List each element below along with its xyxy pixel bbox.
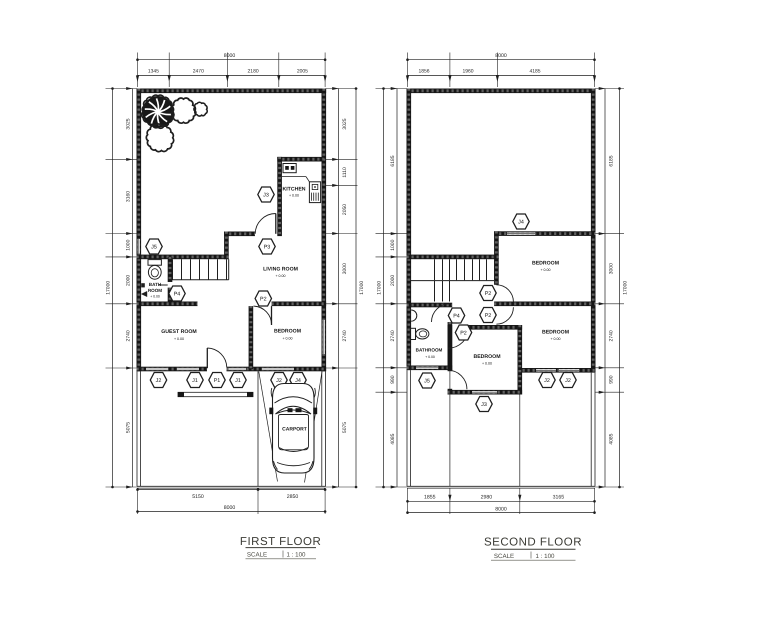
svg-text:5075: 5075 [126,422,132,433]
svg-text:3025: 3025 [342,118,348,129]
svg-text:J1: J1 [192,378,198,384]
svg-text:CARPORT: CARPORT [282,427,307,433]
svg-text:BEDROOM: BEDROOM [274,329,301,335]
svg-text:P2: P2 [485,313,492,319]
svg-text:3025: 3025 [126,118,132,129]
svg-text:J2: J2 [156,378,162,384]
svg-text:1110: 1110 [342,167,348,178]
svg-text:990: 990 [390,375,396,384]
svg-text:17000: 17000 [106,281,112,295]
svg-text:+ 0.00: + 0.00 [150,295,160,299]
svg-text:BATH: BATH [149,282,162,287]
svg-text:2740: 2740 [126,330,132,341]
svg-text:SCALE: SCALE [494,553,514,560]
svg-text:17000: 17000 [377,281,383,295]
svg-text:17000: 17000 [622,281,628,295]
svg-text:6185: 6185 [390,155,396,166]
svg-text:BEDROOM: BEDROOM [542,330,569,336]
svg-text:+ 0.00: + 0.00 [425,355,435,359]
svg-text:SCALE: SCALE [247,552,267,559]
svg-text:+ 0.00: + 0.00 [174,337,184,341]
svg-text:1960: 1960 [462,69,473,75]
svg-text:FIRST FLOOR: FIRST FLOOR [240,536,321,548]
svg-text:4085: 4085 [608,433,614,444]
svg-text:1000: 1000 [390,239,396,250]
svg-text:+ 0.00: + 0.00 [289,193,299,197]
svg-text:990: 990 [608,375,614,384]
svg-text:1856: 1856 [418,69,429,75]
svg-text:8000: 8000 [224,505,236,511]
svg-text:GUEST ROOM: GUEST ROOM [161,329,196,335]
svg-text:1 : 100: 1 : 100 [287,552,306,559]
svg-text:P3: P3 [264,244,271,250]
svg-text:P1: P1 [214,378,221,384]
svg-text:P2: P2 [260,296,267,302]
svg-text:ROOM: ROOM [148,288,162,293]
svg-text:J3: J3 [481,402,487,408]
svg-text:P2: P2 [460,330,467,336]
svg-text:J4: J4 [518,219,524,225]
svg-text:2470: 2470 [193,69,204,75]
svg-text:17000: 17000 [359,281,365,295]
svg-text:2005: 2005 [297,69,308,75]
svg-text:2740: 2740 [608,330,614,341]
svg-text:8000: 8000 [495,506,507,512]
svg-text:+ 0.00: + 0.00 [282,336,292,340]
svg-text:2850: 2850 [287,494,299,500]
svg-text:J2: J2 [276,378,282,384]
svg-text:2980: 2980 [481,495,493,501]
svg-text:1000: 1000 [126,239,132,250]
svg-text:J5: J5 [151,244,157,250]
svg-text:P2: P2 [485,291,492,297]
svg-text:3160: 3160 [126,191,132,202]
svg-text:KITCHEN: KITCHEN [282,186,305,192]
svg-text:+ 0.00: + 0.00 [550,337,560,341]
svg-text:+ 0.00: + 0.00 [482,362,492,366]
svg-text:J3: J3 [263,192,269,198]
svg-text:LIVING ROOM: LIVING ROOM [263,266,298,272]
svg-text:4185: 4185 [529,69,540,75]
svg-text:1345: 1345 [148,69,159,75]
svg-text:BEDROOM: BEDROOM [473,354,500,360]
svg-text:J1: J1 [235,378,241,384]
svg-text:SECOND FLOOR: SECOND FLOOR [484,537,582,549]
svg-text:J2: J2 [544,378,550,384]
svg-text:3000: 3000 [608,263,614,274]
svg-text:5075: 5075 [342,422,348,433]
svg-text:2000: 2000 [390,275,396,286]
svg-text:2180: 2180 [248,69,259,75]
svg-text:2740: 2740 [390,330,396,341]
svg-text:P4: P4 [453,313,460,319]
svg-text:8000: 8000 [495,53,507,59]
svg-text:3000: 3000 [342,263,348,274]
svg-text:5150: 5150 [192,494,204,500]
svg-text:J2: J2 [565,378,571,384]
svg-text:+ 0.00: + 0.00 [275,274,285,278]
svg-text:3165: 3165 [553,495,565,501]
svg-text:2740: 2740 [342,330,348,341]
svg-text:BATHROOM: BATHROOM [416,348,443,353]
svg-text:2000: 2000 [126,275,132,286]
svg-text:1855: 1855 [424,495,436,501]
svg-text:BEDROOM: BEDROOM [532,261,559,267]
svg-text:8000: 8000 [224,53,236,59]
svg-text:1 : 100: 1 : 100 [536,553,555,560]
svg-text:P4: P4 [174,291,181,297]
svg-text:+ 0.00: + 0.00 [540,268,550,272]
svg-text:J5: J5 [424,378,430,384]
svg-text:6185: 6185 [608,155,614,166]
svg-text:2050: 2050 [342,204,348,215]
svg-text:4085: 4085 [390,433,396,444]
